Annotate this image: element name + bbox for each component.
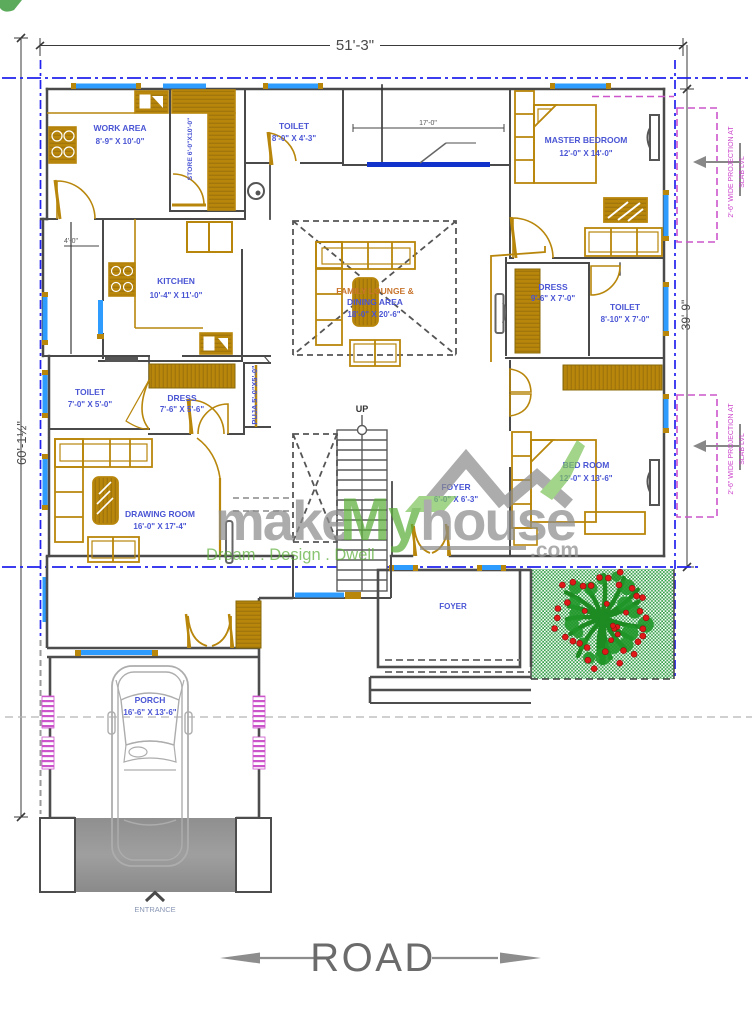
svg-text:PUJA 5'-0"X5'-0": PUJA 5'-0"X5'-0" [250, 365, 259, 425]
svg-text:16'-0" X 17'-4": 16'-0" X 17'-4" [133, 522, 186, 531]
svg-text:2'-6" WIDE PROJECTION AT: 2'-6" WIDE PROJECTION AT [728, 403, 735, 495]
svg-text:KITCHEN: KITCHEN [157, 276, 195, 286]
svg-text:39'-9": 39'-9" [679, 300, 693, 331]
svg-text:60'-1½": 60'-1½" [14, 421, 29, 465]
svg-text:ENTRANCE: ENTRANCE [134, 905, 175, 914]
svg-text:DINING AREA: DINING AREA [347, 297, 403, 307]
svg-text:TOILET: TOILET [610, 302, 641, 312]
svg-text:SLAB LVL: SLAB LVL [739, 433, 746, 465]
svg-text:8'-10" X 7'-0": 8'-10" X 7'-0" [601, 315, 650, 324]
svg-text:Dream . Design . Dwell: Dream . Design . Dwell [206, 546, 375, 564]
svg-text:FOYER: FOYER [439, 602, 467, 611]
svg-text:7'-6" X 5'-6": 7'-6" X 5'-6" [160, 405, 205, 414]
svg-text:DRESS: DRESS [167, 393, 197, 403]
svg-text:My: My [340, 486, 422, 553]
svg-text:7'-0" X 5'-0": 7'-0" X 5'-0" [68, 400, 113, 409]
svg-text:FAMILY LOUNGE &: FAMILY LOUNGE & [336, 286, 413, 296]
svg-text:4'-0": 4'-0" [64, 238, 78, 245]
svg-text:17'-0": 17'-0" [419, 120, 437, 127]
svg-text:9'-6" X 7'-0": 9'-6" X 7'-0" [531, 294, 576, 303]
svg-text:DRAWING ROOM: DRAWING ROOM [125, 509, 195, 519]
svg-text:SLAB LVL: SLAB LVL [739, 156, 746, 188]
svg-text:TOILET: TOILET [279, 121, 310, 131]
svg-text:PORCH: PORCH [135, 695, 166, 705]
svg-text:MASTER BEDROOM: MASTER BEDROOM [545, 135, 628, 145]
svg-text:8'-0" X 4'-3": 8'-0" X 4'-3" [272, 134, 317, 143]
svg-text:STORE 6'-0"X10'-0": STORE 6'-0"X10'-0" [187, 118, 194, 181]
svg-text:TOILET: TOILET [75, 387, 106, 397]
svg-text:2'-6" WIDE PROJECTION AT: 2'-6" WIDE PROJECTION AT [728, 126, 735, 218]
svg-text:.com: .com [530, 539, 579, 562]
svg-text:18'-0" X 20'-6": 18'-0" X 20'-6" [347, 310, 400, 319]
svg-text:16'-6" X 13'-6": 16'-6" X 13'-6" [123, 708, 176, 717]
svg-text:10'-4" X 11'-0": 10'-4" X 11'-0" [150, 291, 203, 300]
svg-text:51'-3": 51'-3" [336, 37, 374, 54]
svg-text:12'-0" X 14'-0": 12'-0" X 14'-0" [559, 149, 612, 158]
svg-text:8'-9" X 10'-0": 8'-9" X 10'-0" [96, 137, 145, 146]
svg-text:UP: UP [356, 404, 369, 414]
svg-text:DRESS: DRESS [538, 282, 568, 292]
svg-text:make: make [215, 489, 351, 552]
svg-text:WORK AREA: WORK AREA [93, 123, 146, 133]
svg-text:ROAD: ROAD [310, 936, 436, 980]
